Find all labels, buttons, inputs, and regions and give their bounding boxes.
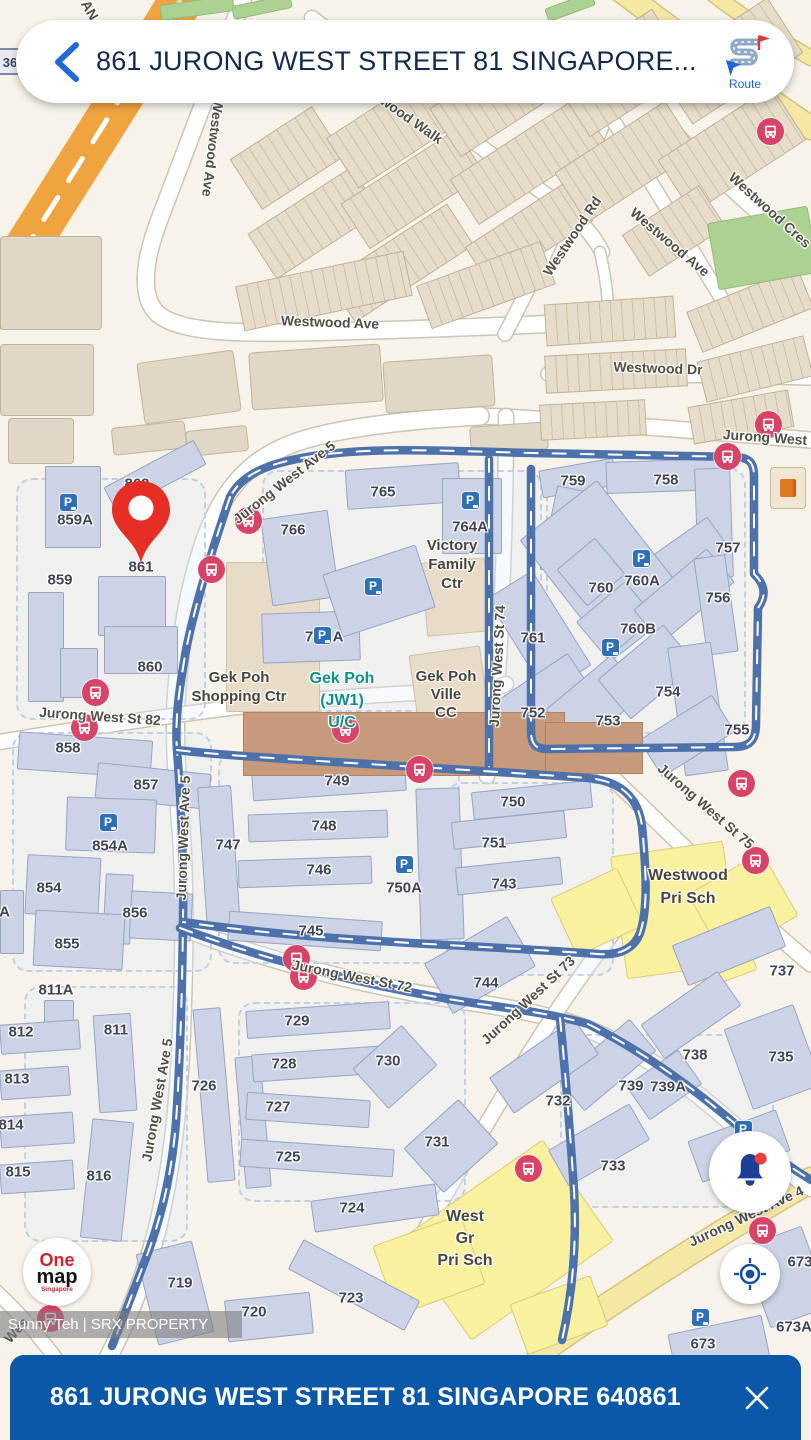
location-pin-icon xyxy=(109,478,173,566)
onemap-logo-sub: Singapore xyxy=(41,1286,73,1293)
route-button[interactable]: Route xyxy=(706,24,784,100)
address-text: 861 JURONG WEST STREET 81 SINGAPORE 6408… xyxy=(50,1383,727,1412)
map-canvas[interactable]: PPPPPPPPPP 862859A861859860858857854A854… xyxy=(0,0,811,1440)
search-query[interactable]: 861 JURONG WEST STREET 81 SINGAPORE... xyxy=(96,46,706,77)
back-button[interactable] xyxy=(38,33,96,91)
notifications-button[interactable] xyxy=(709,1131,791,1213)
road-path xyxy=(230,450,764,749)
road-path xyxy=(560,1018,575,1340)
locate-me-button[interactable] xyxy=(720,1244,780,1304)
address-bottom-bar[interactable]: 861 JURONG WEST STREET 81 SINGAPORE 6408… xyxy=(10,1355,801,1440)
route-layer xyxy=(0,0,811,1440)
locate-crosshair-icon xyxy=(732,1256,768,1292)
close-icon xyxy=(743,1384,771,1412)
road-path xyxy=(112,497,230,1346)
onemap-logo-bottom: map xyxy=(36,1268,77,1286)
bell-icon xyxy=(727,1149,773,1195)
close-button[interactable] xyxy=(727,1368,787,1428)
map-attribution: Sunny Teh | SRX PROPERTY xyxy=(0,1311,242,1338)
onemap-logo: One map Singapore xyxy=(23,1238,91,1306)
route-label: Route xyxy=(729,77,761,91)
back-chevron-icon xyxy=(52,41,82,83)
road-path xyxy=(112,497,230,1346)
search-bar[interactable]: 861 JURONG WEST STREET 81 SINGAPORE... R… xyxy=(16,20,794,103)
road-path xyxy=(177,750,646,954)
route-icon xyxy=(719,33,771,79)
road-path xyxy=(230,450,764,749)
